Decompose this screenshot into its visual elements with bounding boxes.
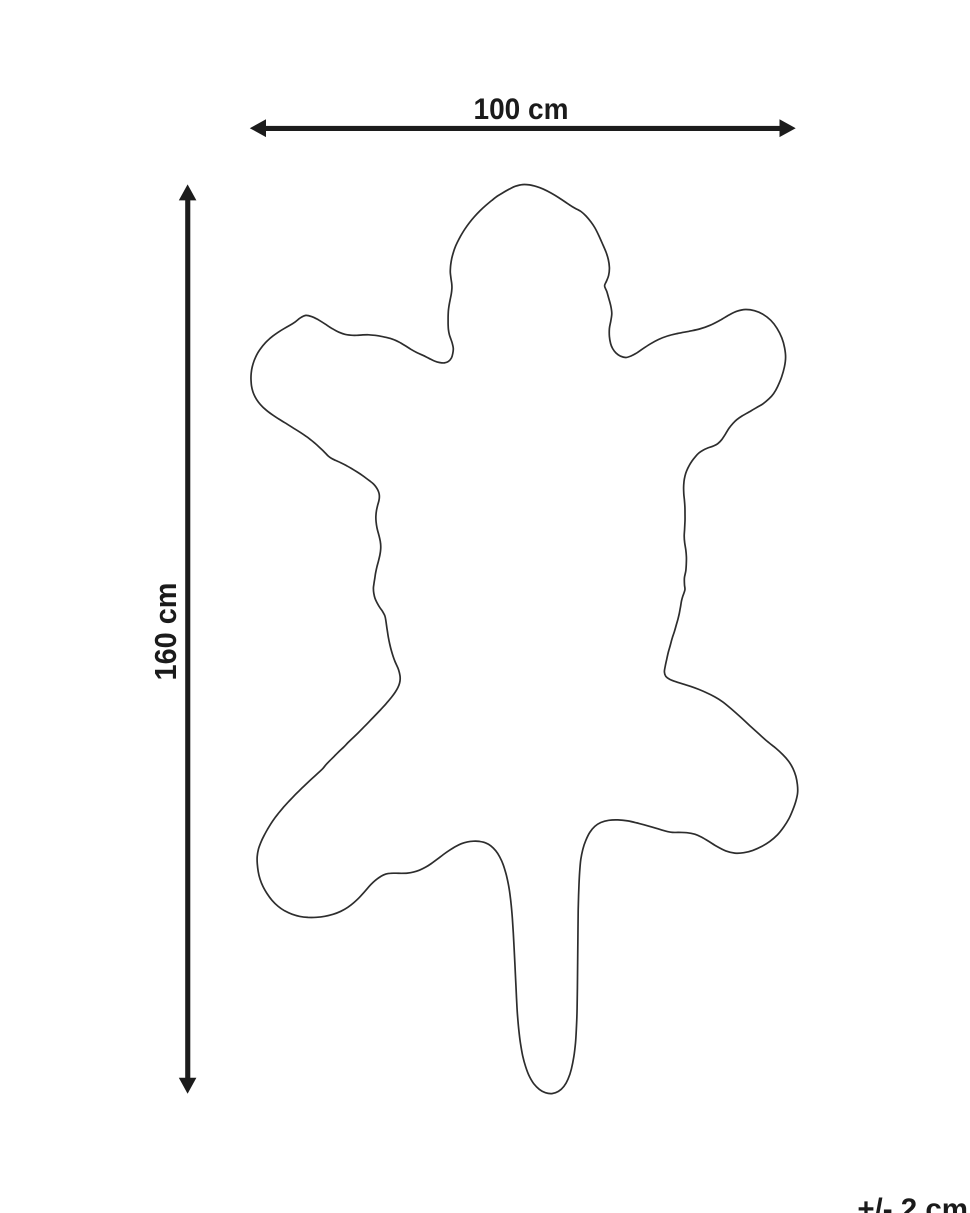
svg-text:160 cm: 160 cm [149, 583, 183, 681]
svg-text:+/- 2 cm: +/- 2 cm [857, 1193, 968, 1213]
svg-text:100 cm: 100 cm [474, 93, 569, 126]
